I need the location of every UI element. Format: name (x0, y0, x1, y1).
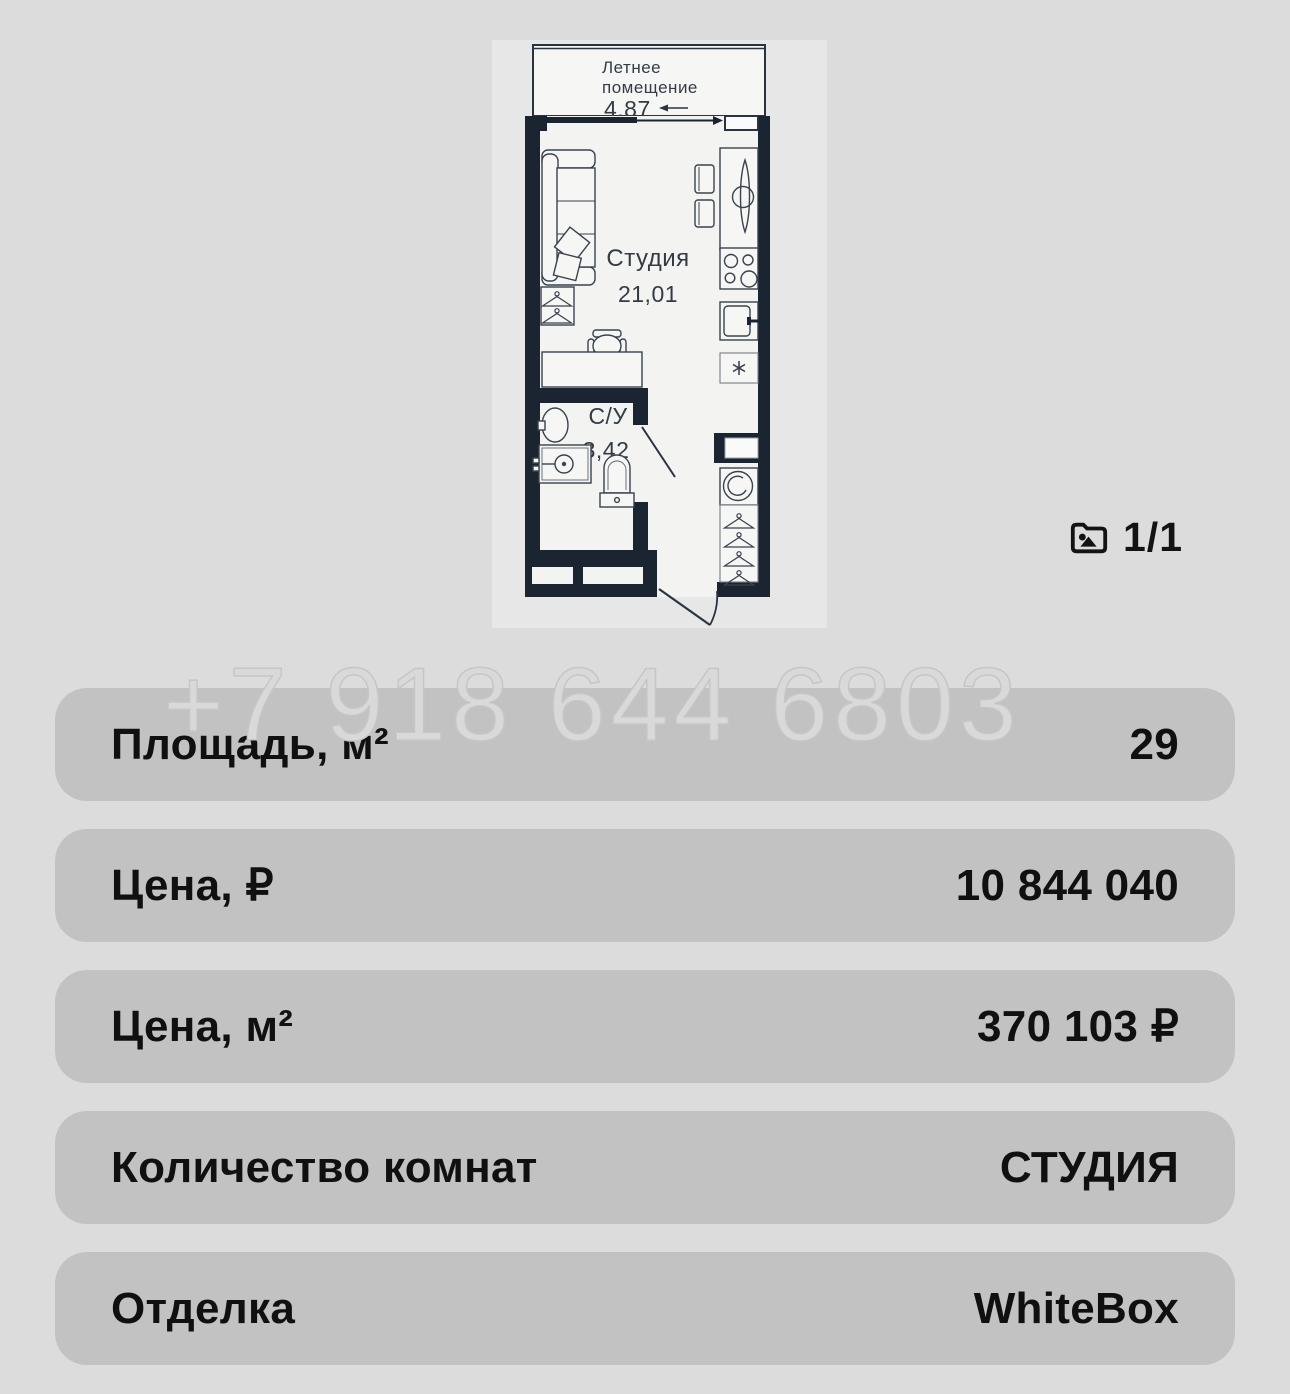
studio-label: Студия (606, 245, 689, 272)
row-label: Отделка (111, 1284, 295, 1334)
bar-stool (695, 165, 714, 193)
gallery-counter: 1/1 (1066, 514, 1183, 561)
balcony-label-2: помещение (602, 78, 698, 97)
stove (720, 248, 758, 289)
appliance-asterisk (720, 353, 758, 383)
detail-row-price: Цена, ₽ 10 844 040 (55, 829, 1235, 942)
detail-row-price-per-m2: Цена, м² 370 103 ₽ (55, 970, 1235, 1083)
row-value: 370 103 ₽ (977, 1001, 1179, 1052)
folder-image-icon (1066, 518, 1112, 558)
kitchen-sink (720, 302, 759, 340)
toilet (600, 455, 634, 507)
row-value: 10 844 040 (956, 861, 1179, 911)
row-value: СТУДИЯ (1000, 1143, 1179, 1193)
bar-stool (695, 200, 714, 227)
balcony: Летнее помещение 4,87 (533, 45, 765, 122)
washing-machine (720, 468, 758, 505)
floor-plan-image[interactable]: Летнее помещение 4,87 (492, 40, 827, 628)
detail-row-finish: Отделка WhiteBox (55, 1252, 1235, 1365)
row-value: WhiteBox (974, 1284, 1179, 1334)
desk (542, 352, 642, 387)
bar-counter (720, 148, 758, 250)
floor-plan-svg: Летнее помещение 4,87 (492, 40, 827, 628)
gallery-counter-text: 1/1 (1123, 514, 1183, 561)
detail-row-area: Площадь, м² 29 (55, 688, 1235, 801)
row-label: Площадь, м² (111, 720, 389, 770)
row-label: Количество комнат (111, 1143, 538, 1193)
wardrobe-small (541, 287, 574, 325)
studio-area: 21,01 (618, 281, 678, 307)
listing-page: Летнее помещение 4,87 (0, 0, 1290, 1394)
sofa (542, 150, 595, 285)
row-label: Цена, м² (111, 1002, 293, 1052)
wardrobe-hallway (720, 505, 758, 585)
window-segment (725, 116, 758, 130)
row-label: Цена, ₽ (111, 860, 274, 911)
pillow (553, 253, 581, 281)
shower (533, 445, 591, 483)
bathroom-label: С/У (588, 403, 627, 429)
row-value: 29 (1129, 720, 1179, 770)
balcony-label-1: Летнее (602, 58, 661, 77)
detail-row-rooms: Количество комнат СТУДИЯ (55, 1111, 1235, 1224)
